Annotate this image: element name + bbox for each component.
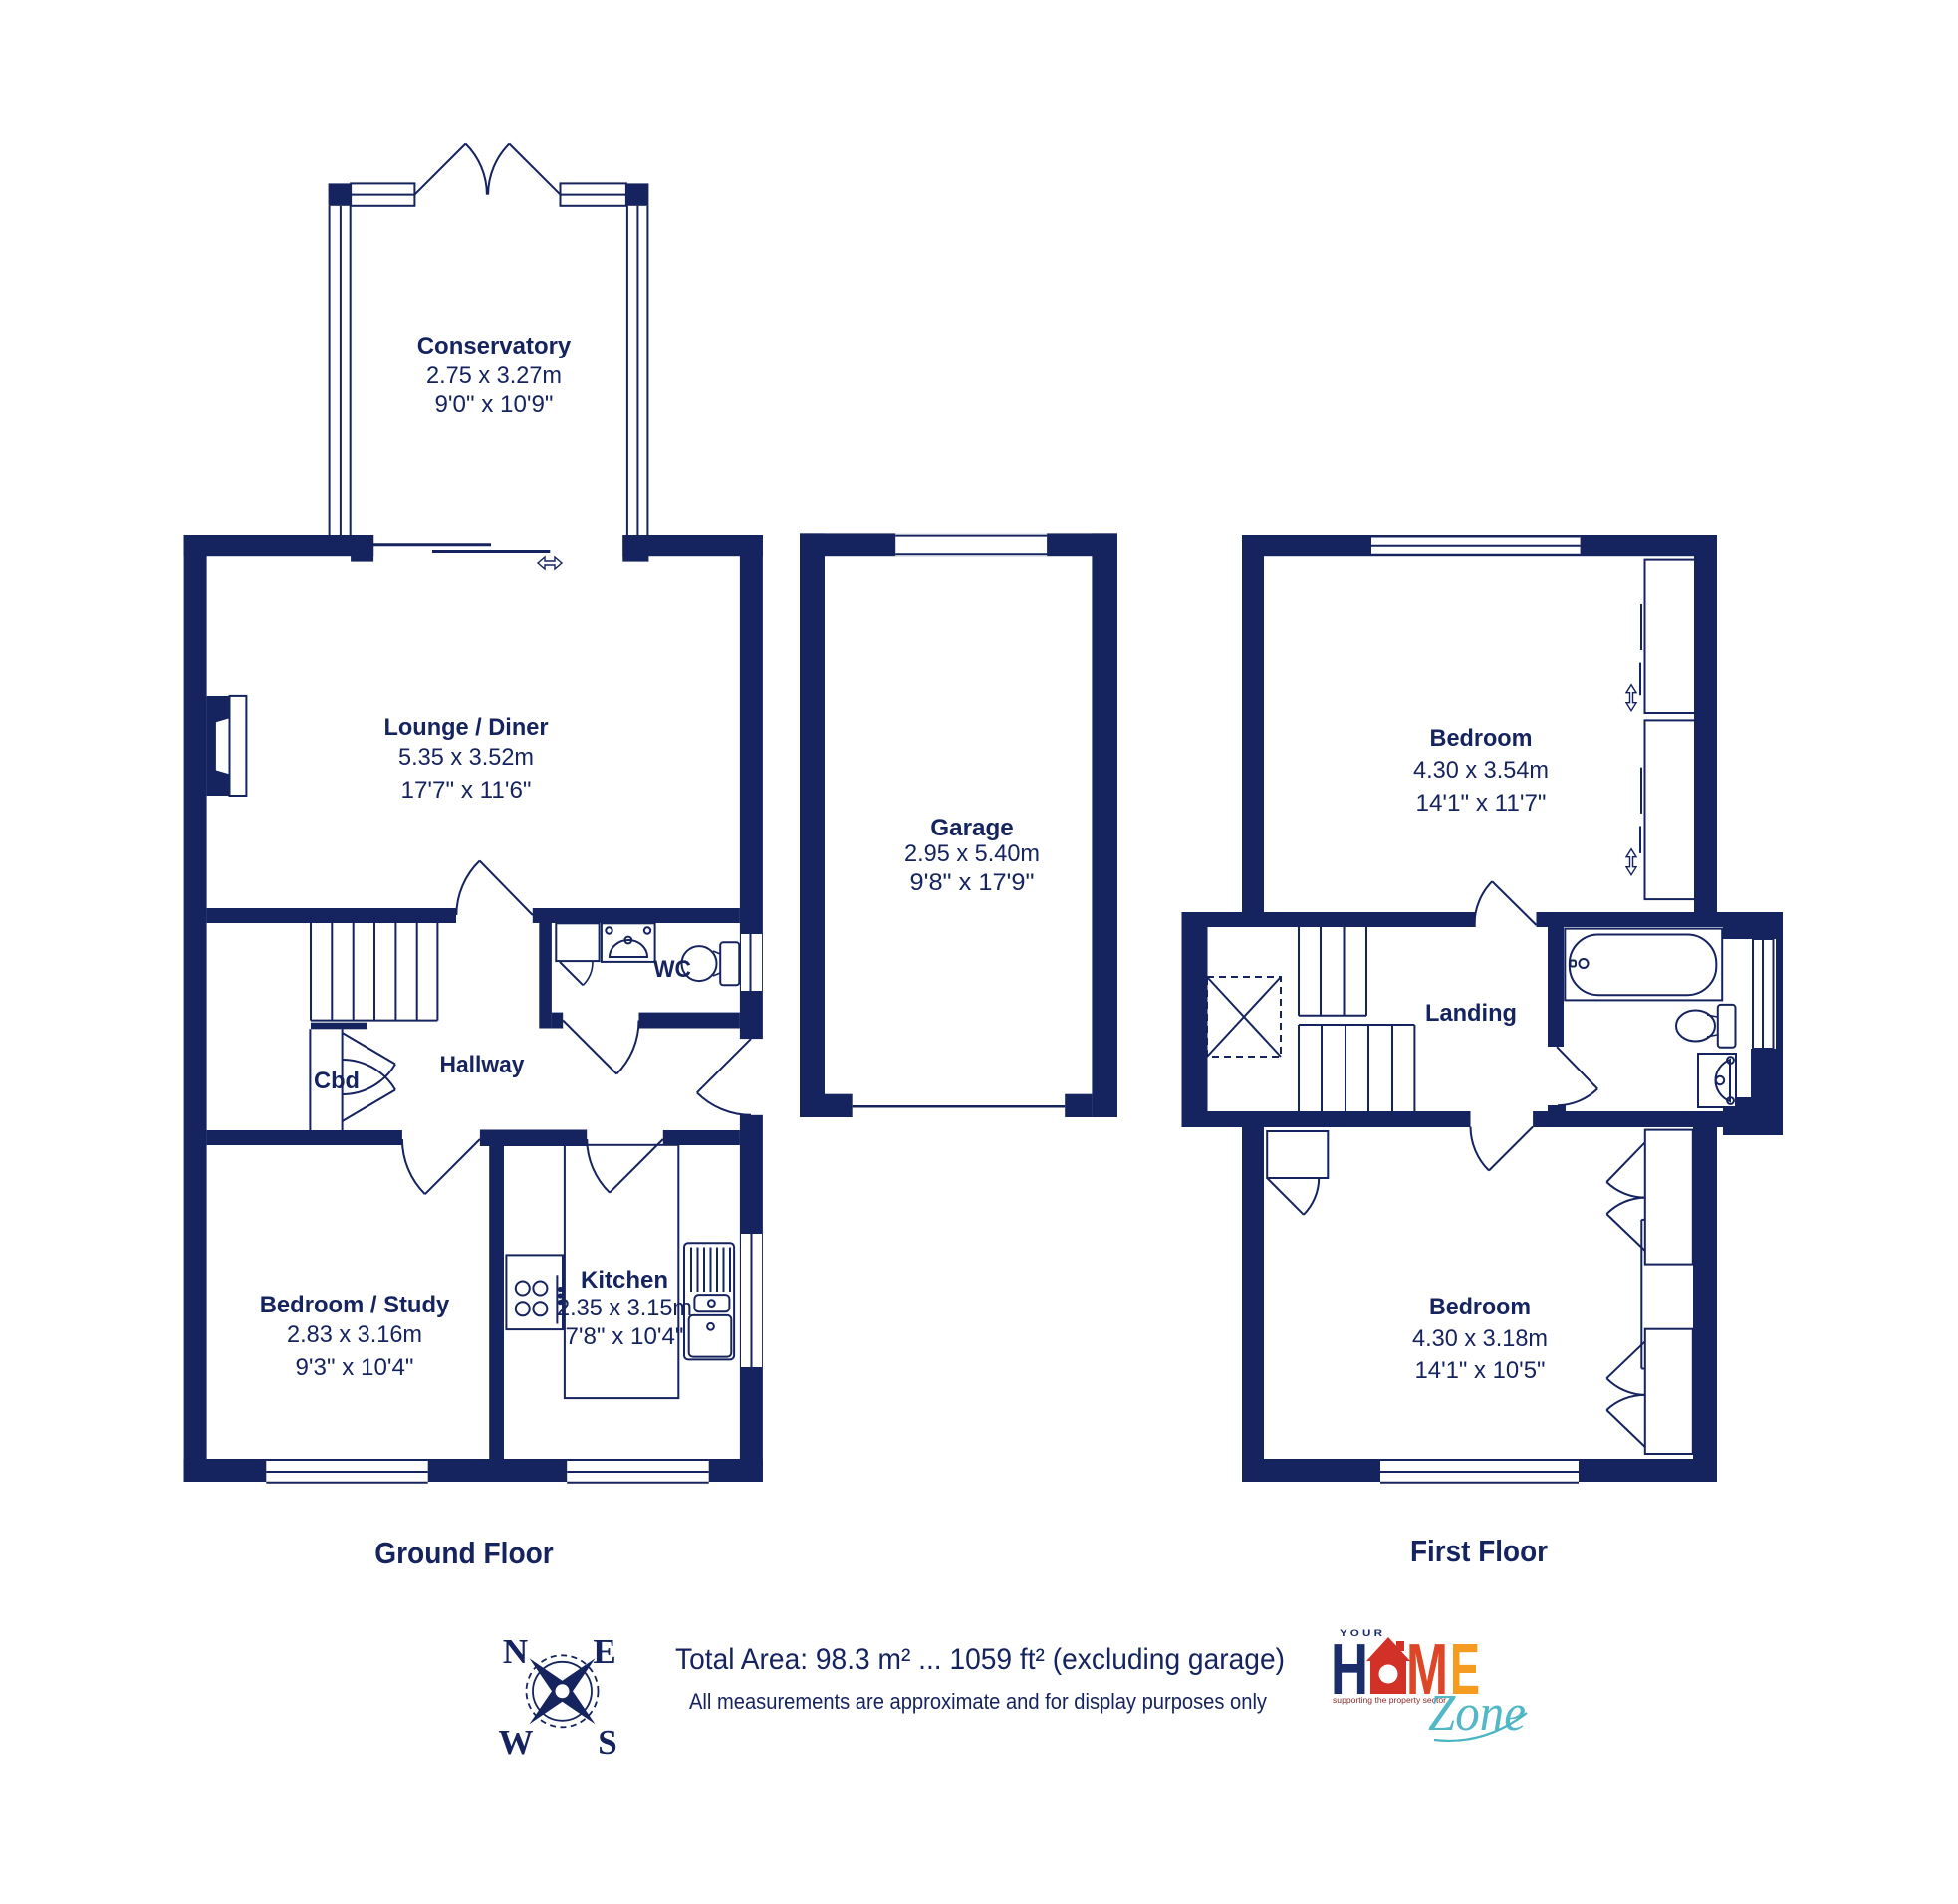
svg-text:E: E <box>593 1632 615 1671</box>
svg-text:14'1" x 10'5": 14'1" x 10'5" <box>1415 1357 1546 1384</box>
svg-text:17'7" x 11'6": 17'7" x 11'6" <box>401 777 532 804</box>
svg-text:Kitchen: Kitchen <box>581 1267 668 1294</box>
svg-text:4.30 x 3.54m: 4.30 x 3.54m <box>1413 757 1549 784</box>
svg-text:9'8" x 17'9": 9'8" x 17'9" <box>910 869 1035 896</box>
svg-text:All measurements are approxima: All measurements are approximate and for… <box>689 1689 1267 1714</box>
svg-text:Zone: Zone <box>1428 1685 1526 1742</box>
svg-text:Bedroom: Bedroom <box>1429 1294 1531 1320</box>
svg-text:9'0" x 10'9": 9'0" x 10'9" <box>435 391 554 418</box>
svg-text:2.75 x 3.27m: 2.75 x 3.27m <box>426 362 562 389</box>
svg-text:WC: WC <box>653 956 691 983</box>
svg-text:2.83 x 3.16m: 2.83 x 3.16m <box>287 1321 422 1348</box>
svg-text:5.35 x 3.52m: 5.35 x 3.52m <box>398 744 534 771</box>
svg-text:14'1" x 11'7": 14'1" x 11'7" <box>1416 790 1547 817</box>
svg-text:Lounge / Diner: Lounge / Diner <box>384 714 549 741</box>
svg-text:First Floor: First Floor <box>1410 1534 1548 1568</box>
svg-text:N: N <box>503 1632 528 1671</box>
svg-text:Bedroom / Study: Bedroom / Study <box>260 1292 450 1318</box>
svg-text:4.30 x 3.18m: 4.30 x 3.18m <box>1412 1325 1548 1352</box>
svg-text:W: W <box>499 1723 534 1762</box>
svg-text:2.95 x 5.40m: 2.95 x 5.40m <box>904 840 1040 867</box>
svg-text:Conservatory: Conservatory <box>417 333 572 359</box>
svg-text:S: S <box>598 1723 616 1762</box>
svg-text:Bedroom: Bedroom <box>1430 725 1533 752</box>
svg-text:Cbd: Cbd <box>314 1068 360 1094</box>
svg-text:Total Area: 98.3 m² ... 1059 f: Total Area: 98.3 m² ... 1059 ft² (exclud… <box>675 1643 1285 1676</box>
svg-text:Landing: Landing <box>1425 1000 1517 1027</box>
svg-text:9'3" x 10'4": 9'3" x 10'4" <box>296 1354 414 1381</box>
svg-text:Garage: Garage <box>930 815 1014 841</box>
svg-text:2.35 x 3.15m: 2.35 x 3.15m <box>557 1295 692 1321</box>
svg-text:Hallway: Hallway <box>440 1052 526 1078</box>
svg-text:7'8" x 10'4": 7'8" x 10'4" <box>566 1323 684 1350</box>
svg-text:Ground Floor: Ground Floor <box>374 1536 554 1570</box>
